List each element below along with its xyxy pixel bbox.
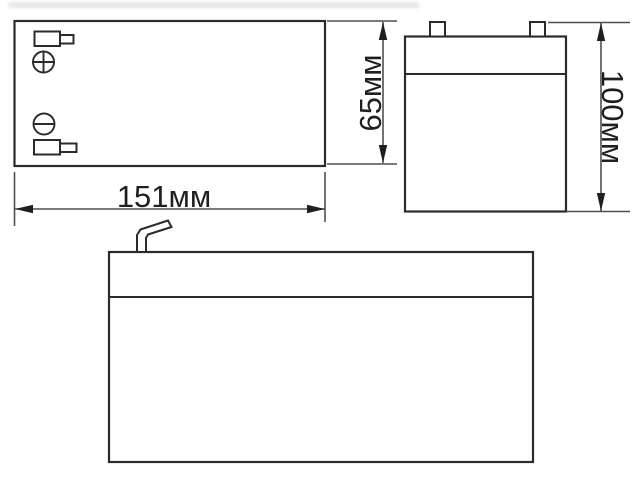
width-dimension: 65мм [327,21,397,164]
top-view [15,21,326,166]
side-view [405,22,566,212]
front-view-outline [109,252,533,462]
arrow-up-icon [379,22,387,40]
side-view-outline [405,37,566,212]
width-dimension-label: 65мм [353,54,388,131]
battery-dimensional-drawing: 151мм 65мм 100мм [0,0,640,480]
front-terminal-tab [137,221,172,253]
arrow-down-icon [379,145,387,163]
terminal-tab [60,144,77,153]
arrow-left-icon [15,205,33,213]
terminal-body [34,140,60,155]
length-dimension: 151мм [15,172,326,226]
side-terminal-left [430,22,445,37]
minus-screw-icon [33,114,55,135]
arrow-up-icon [597,23,605,41]
plus-screw-icon [32,51,55,73]
terminal-body [35,32,61,47]
height-dimension-label: 100мм [595,70,630,164]
drawing-canvas: 151мм 65мм 100мм [0,0,640,480]
length-dimension-label: 151мм [117,179,211,214]
arrow-right-icon [307,205,325,213]
arrow-down-icon [597,193,605,211]
front-view [109,221,533,463]
terminal-tab [60,35,74,44]
side-terminal-right [530,22,545,37]
